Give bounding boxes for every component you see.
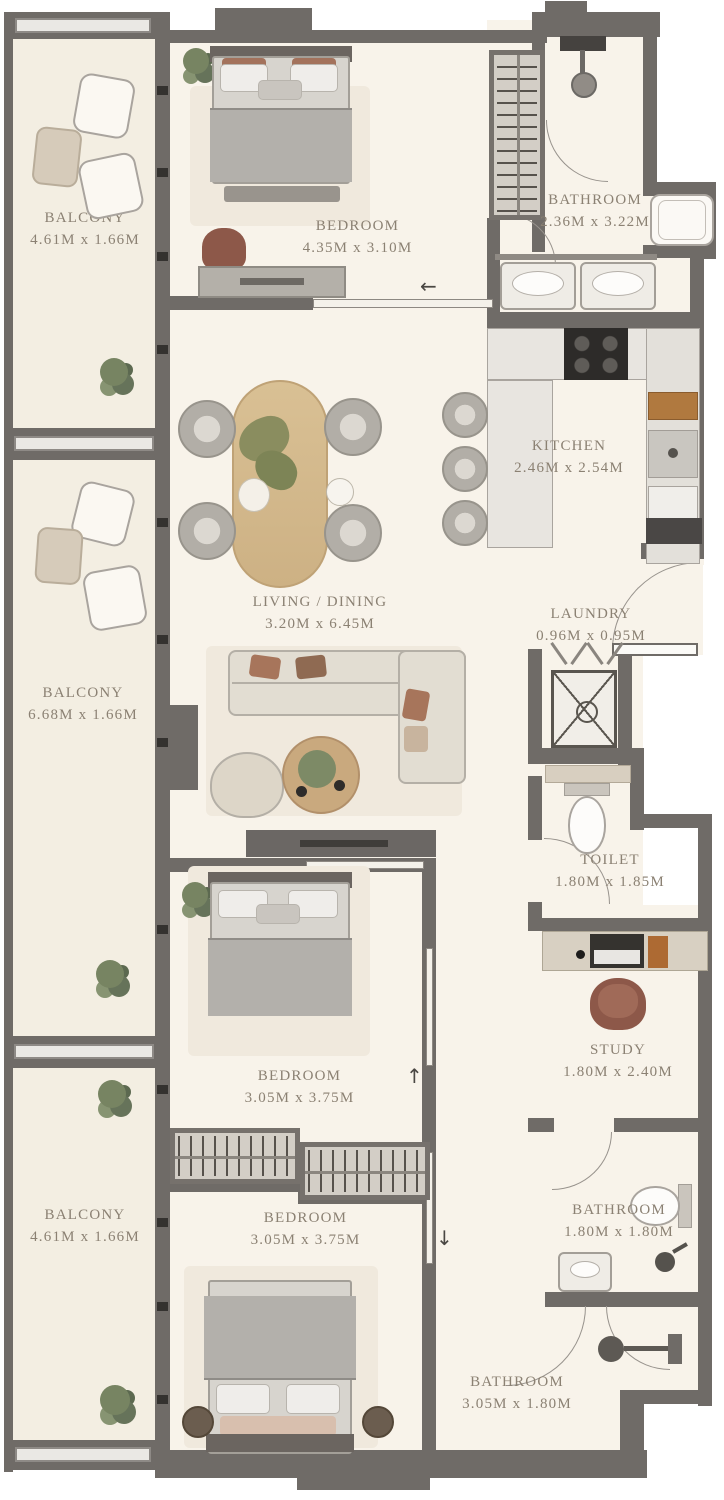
wall-segment: [297, 1478, 430, 1490]
balcony-chair: [81, 563, 149, 632]
cutting-board: [648, 392, 698, 420]
window-break: [157, 252, 168, 261]
sink-basin: [570, 1261, 600, 1278]
window-panel: [15, 18, 151, 33]
window-panel: [14, 436, 154, 451]
room-label-toilet: TOILET 1.80M x 1.85M: [530, 850, 690, 894]
coffee-cup: [296, 786, 307, 797]
outside-notch: [657, 0, 724, 184]
stove: [564, 328, 628, 380]
plant: [96, 960, 124, 988]
dining-chair: [324, 504, 382, 562]
window-panel: [14, 1044, 154, 1059]
table-bowl: [326, 478, 354, 506]
window-break: [157, 345, 168, 354]
tv: [300, 840, 388, 847]
shower-arm: [624, 1346, 672, 1351]
bed-accent-pillow: [220, 1416, 336, 1436]
sink-basin: [512, 271, 564, 296]
bed-bench: [224, 186, 340, 202]
plant: [100, 358, 128, 386]
wall-segment: [160, 30, 497, 43]
wall-segment: [160, 296, 313, 310]
washer-drum: [576, 701, 598, 723]
sink: [558, 1252, 612, 1292]
outside-notch: [644, 1404, 724, 1500]
bed-blanket: [204, 1296, 356, 1380]
room-label-living-dining: LIVING / DINING 3.20M x 6.45M: [235, 592, 405, 636]
balcony-table: [31, 126, 83, 188]
window-break: [157, 738, 168, 747]
room-label-bedroom-top: BEDROOM 4.35M x 3.10M: [275, 216, 440, 260]
window-break: [157, 1302, 168, 1311]
desk-books: [648, 936, 668, 968]
wardrobe: [300, 1142, 430, 1200]
wall-segment: [643, 12, 657, 190]
wall-segment: [528, 1118, 554, 1132]
wardrobe: [170, 1128, 300, 1184]
dining-chair: [178, 502, 236, 560]
armchair: [210, 752, 284, 818]
shower-arm: [560, 36, 606, 51]
sink: [500, 262, 576, 310]
sink: [580, 262, 656, 310]
floor-plan: BEDROOM 4.35M x 3.10M ← BATHROOM 2.36M x…: [0, 0, 724, 1500]
plant: [98, 1080, 126, 1108]
room-label-bathroom-bottom: BATHROOM 3.05M x 1.80M: [428, 1372, 606, 1416]
plant: [182, 882, 208, 908]
shower-head-icon: [571, 72, 597, 98]
shower-stem: [580, 50, 585, 74]
bar-stool: [442, 446, 488, 492]
window-panel: [15, 1447, 151, 1462]
nightstand: [362, 1406, 394, 1438]
dining-chair: [324, 398, 382, 456]
study-chair-seat: [598, 984, 638, 1018]
outside-notch: [644, 655, 724, 815]
structural-column: [168, 705, 198, 790]
closet-rod: [175, 1156, 295, 1159]
throw-pillow: [295, 654, 327, 679]
wall-segment: [542, 748, 632, 764]
dining-chair: [178, 400, 236, 458]
appliance-knob: [668, 448, 678, 458]
bed-pillow: [216, 1384, 270, 1414]
wall-segment: [528, 776, 542, 840]
door-direction-arrow: ↓: [436, 1228, 453, 1248]
toilet-tank: [564, 783, 610, 796]
toilet-bowl: [568, 796, 606, 854]
coffee-table-plant: [298, 750, 336, 788]
sliding-door: [426, 948, 433, 1066]
room-label-balcony-top: BALCONY 4.61M x 1.66M: [10, 208, 160, 252]
bed-pillow: [256, 904, 300, 924]
door-direction-arrow: ↑: [406, 1066, 423, 1086]
room-label-bedroom-mid: BEDROOM 3.05M x 3.75M: [222, 1066, 377, 1110]
window-break: [157, 168, 168, 177]
wall-segment: [528, 649, 542, 764]
bed-pillow: [286, 1384, 340, 1414]
shower-valve: [598, 1336, 624, 1362]
dresser-handle: [240, 278, 304, 285]
sliding-door: [313, 299, 493, 308]
bed-blanket: [210, 108, 352, 182]
plant: [100, 1385, 130, 1415]
wall-segment: [698, 814, 712, 1406]
bed-pillow: [258, 80, 302, 100]
bed-blanket: [208, 938, 352, 1016]
bed-headboard: [206, 1434, 354, 1452]
toilet-vanity: [545, 765, 631, 783]
vanity-edge: [495, 254, 657, 260]
wall-segment: [545, 1, 587, 14]
window-break: [157, 1085, 168, 1094]
room-label-bedroom-bottom: BEDROOM 3.05M x 3.75M: [228, 1208, 383, 1252]
room-label-study: STUDY 1.80M x 2.40M: [532, 1040, 704, 1084]
window-break: [157, 635, 168, 644]
shower-head-icon: [668, 1334, 682, 1364]
shower-head-icon: [655, 1252, 675, 1272]
bar-stool: [442, 500, 488, 546]
wall-segment: [528, 918, 710, 931]
throw-pillow: [402, 688, 431, 722]
window-break: [157, 518, 168, 527]
wall-segment: [545, 1292, 712, 1307]
room-label-balcony-bottom: BALCONY 4.61M x 1.66M: [10, 1205, 160, 1249]
wall-segment: [620, 1390, 644, 1452]
room-label-kitchen: KITCHEN 2.46M x 2.54M: [490, 436, 648, 480]
plant: [183, 48, 209, 74]
balcony-table: [34, 526, 84, 585]
table-decor: [238, 478, 270, 512]
room-label-balcony-mid: BALCONY 6.68M x 1.66M: [8, 683, 158, 727]
wall-segment: [540, 12, 660, 37]
throw-pillow: [249, 654, 282, 680]
wall-segment: [215, 8, 312, 33]
balcony-chair: [76, 151, 145, 222]
window-break: [157, 86, 168, 95]
washer: [551, 670, 617, 748]
closet-rod: [305, 1171, 425, 1174]
bar-stool: [442, 392, 488, 438]
sink-basin: [592, 271, 644, 296]
wall-segment: [155, 1450, 647, 1478]
throw-pillow: [404, 726, 428, 752]
room-label-bathroom-ensuite: BATHROOM 1.80M x 1.80M: [535, 1200, 703, 1244]
desk-chair: [202, 228, 246, 270]
room-label-bathroom-top: BATHROOM 2.36M x 3.22M: [505, 190, 685, 234]
wall-segment: [614, 1118, 712, 1132]
balcony-chair: [71, 72, 137, 141]
laptop-keyboard: [594, 950, 640, 964]
desk-lamp: [576, 950, 585, 959]
coffee-cup: [334, 780, 345, 791]
window-break: [157, 1395, 168, 1404]
door-direction-arrow: ←: [420, 276, 437, 296]
fridge: [646, 518, 702, 544]
wall-segment: [487, 312, 704, 328]
room-label-laundry: LAUNDRY 0.96M x 0.95M: [505, 604, 677, 648]
window-break: [157, 925, 168, 934]
nightstand: [182, 1406, 214, 1438]
